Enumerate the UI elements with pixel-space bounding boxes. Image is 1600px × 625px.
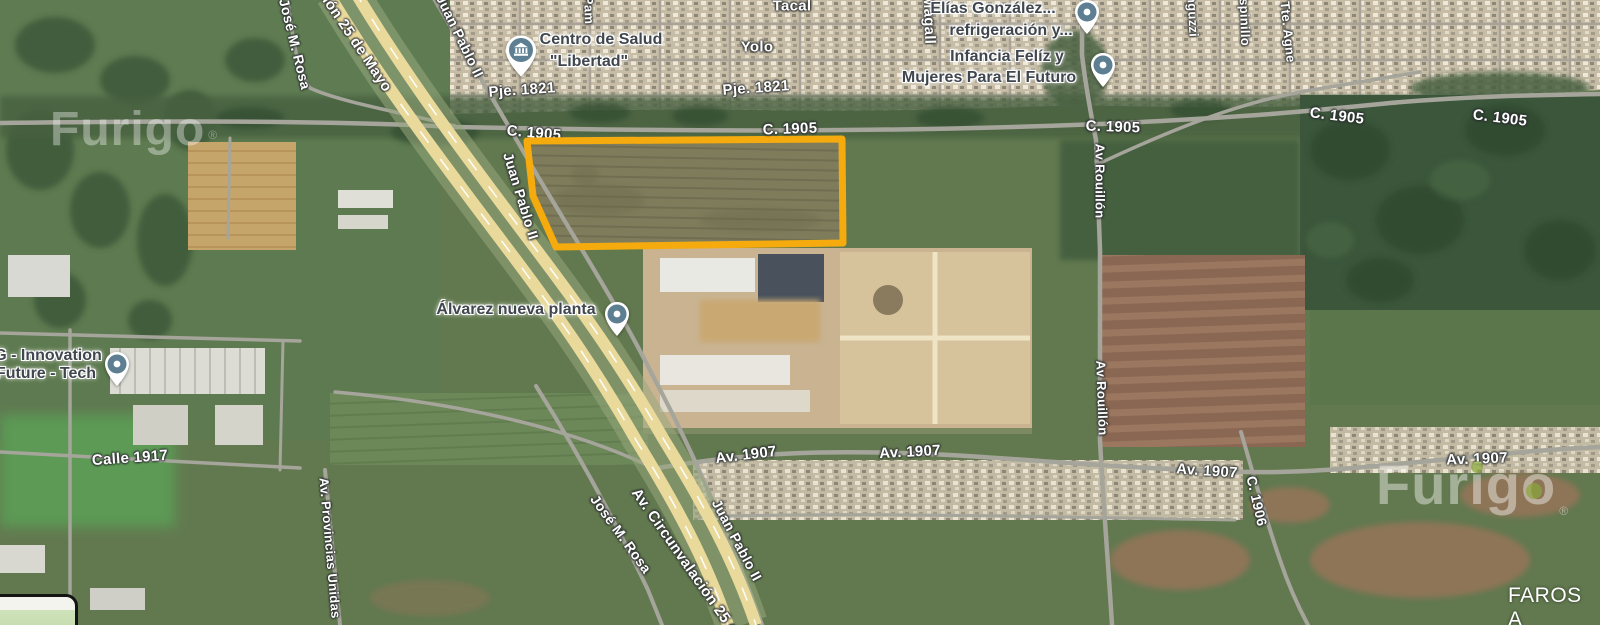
poi-dot-icon (1090, 52, 1116, 88)
poi-dot-icon (104, 351, 130, 387)
marker-alvarez-nueva-planta[interactable] (604, 301, 630, 337)
satellite-map[interactable]: C. 1905 José M. Rosaión 25 de MayoJuan P… (0, 0, 1600, 625)
poi-dot-icon (604, 301, 630, 337)
health-building-icon (504, 34, 538, 78)
map-markers-layer (0, 0, 1600, 625)
poi-dot-icon (1074, 0, 1100, 35)
attribution-text: FAROS A (1508, 584, 1600, 625)
marker-elias-gonzalez[interactable] (1074, 0, 1100, 35)
marker-centro-de-salud[interactable] (504, 34, 538, 78)
inset-map-thumbnail[interactable] (0, 594, 78, 625)
marker-g-innovation[interactable] (104, 351, 130, 387)
marker-infancia-feliz[interactable] (1090, 52, 1116, 88)
